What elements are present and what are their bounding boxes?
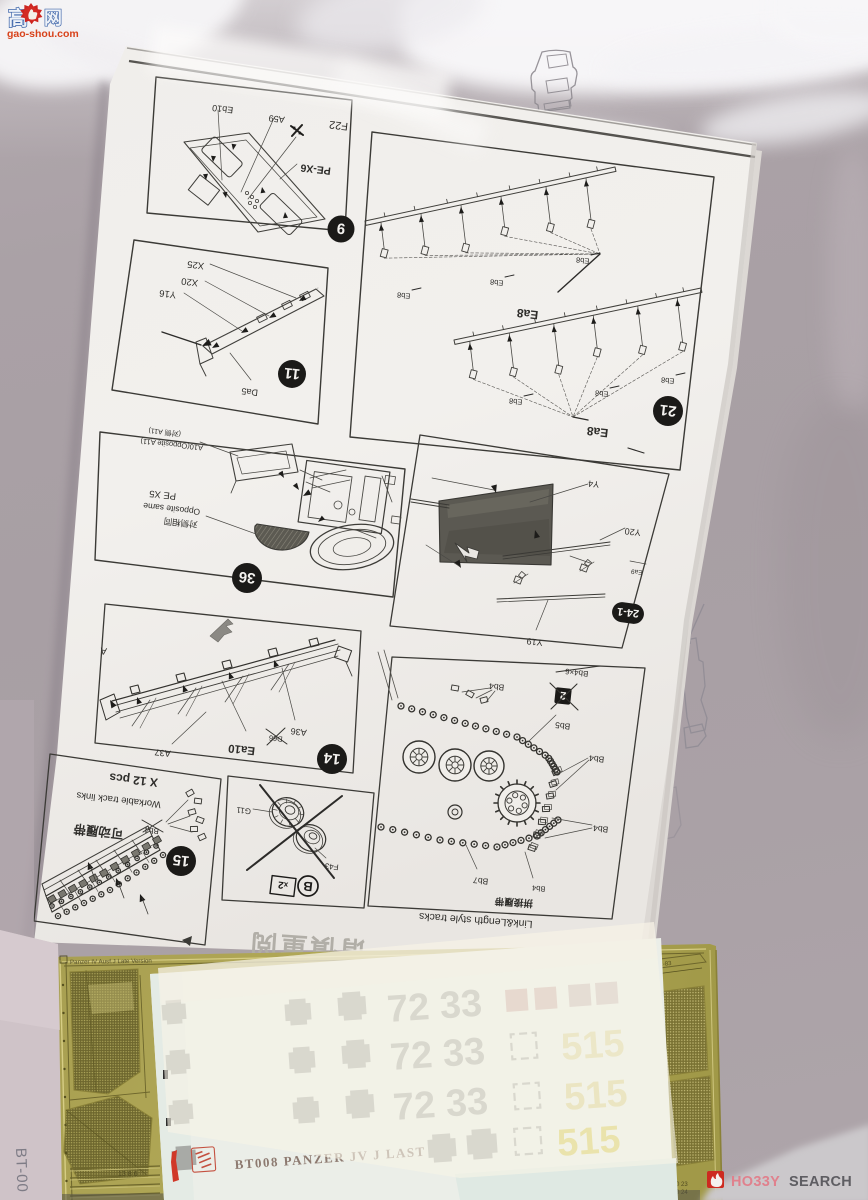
svg-text:Eb8: Eb8 [595,388,609,398]
svg-text:24-1: 24-1 [616,605,639,619]
svg-text:Bb4: Bb4 [488,681,504,693]
svg-text:Y20: Y20 [624,526,641,538]
svg-text:Ea8: Ea8 [516,306,539,322]
svg-text:Ea9: Ea9 [630,567,643,575]
svg-text:G11: G11 [235,805,251,816]
svg-text:gao-shou.com: gao-shou.com [7,28,79,40]
svg-text:Panzer IV Ausf.J Late Version: Panzer IV Ausf.J Late Version [70,958,153,966]
svg-text:Da5: Da5 [241,386,259,398]
svg-text:Eb8: Eb8 [576,255,590,265]
svg-text:A37: A37 [154,747,171,759]
svg-text:Ea8: Ea8 [586,424,609,440]
svg-text:21: 21 [659,401,678,420]
svg-text:B: B [302,879,313,895]
svg-text:F43: F43 [324,861,339,872]
svg-text:36: 36 [238,568,257,587]
svg-text:Y16: Y16 [159,287,177,300]
svg-text:13 8 6: 13 8 6 [118,1171,138,1178]
svg-text:A59: A59 [268,113,285,125]
svg-text:F22: F22 [329,118,349,132]
svg-text:X20: X20 [181,275,199,288]
svg-text:Bb4: Bb4 [532,883,546,893]
svg-text:Bb4: Bb4 [592,823,608,835]
svg-text:15: 15 [172,851,191,870]
svg-text:Bb4: Bb4 [588,753,604,765]
svg-text:HO33Y: HO33Y [731,1174,780,1190]
svg-text:X25: X25 [187,258,205,271]
svg-text:Eb8: Eb8 [661,375,675,385]
svg-text:Bb7: Bb7 [472,875,488,887]
svg-text:Y19: Y19 [526,636,543,648]
svg-text:11: 11 [283,364,301,383]
svg-text:0 23: 0 23 [676,1182,688,1188]
svg-text:BT-00: BT-00 [12,1148,31,1194]
svg-text:Eb8: Eb8 [490,277,504,287]
svg-text:Eb8: Eb8 [397,290,411,300]
svg-text:Bb5: Bb5 [554,720,570,732]
svg-text:14: 14 [322,749,341,768]
svg-text:网: 网 [44,8,62,28]
svg-text:SEARCH: SEARCH [789,1174,852,1190]
svg-text:A36: A36 [290,726,307,738]
svg-text:Y4: Y4 [588,478,600,489]
svg-text:Eb8: Eb8 [509,396,523,406]
